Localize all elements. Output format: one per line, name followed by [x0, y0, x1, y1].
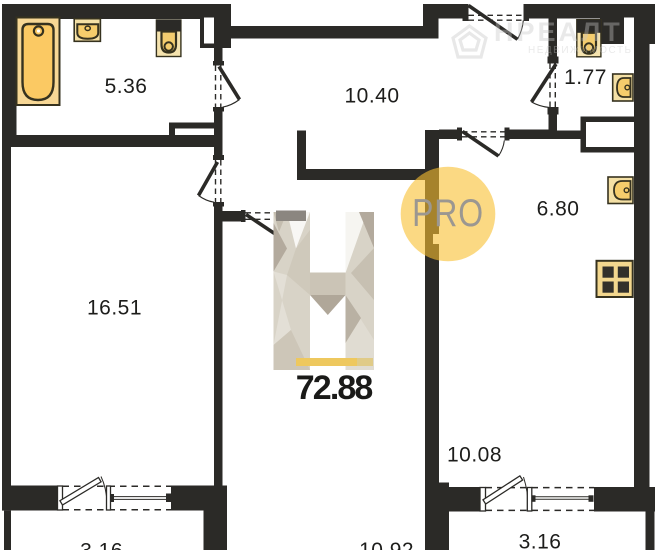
- svg-text:НРЕАЛТ: НРЕАЛТ: [494, 17, 623, 47]
- svg-text:16.51: 16.51: [87, 297, 142, 320]
- svg-text:3.16: 3.16: [80, 540, 123, 550]
- svg-text:10.40: 10.40: [344, 85, 399, 108]
- svg-text:10.92: 10.92: [359, 539, 414, 550]
- svg-text:НЕДВИЖИМОСТЬ: НЕДВИЖИМОСТЬ: [528, 45, 633, 56]
- svg-text:PRO: PRO: [412, 191, 484, 235]
- svg-text:6.80: 6.80: [537, 198, 580, 221]
- svg-text:72.88: 72.88: [296, 369, 373, 407]
- svg-text:3.16: 3.16: [519, 531, 562, 550]
- svg-text:10.08: 10.08: [447, 444, 502, 467]
- svg-text:5.36: 5.36: [105, 75, 148, 98]
- svg-text:1.77: 1.77: [564, 66, 607, 89]
